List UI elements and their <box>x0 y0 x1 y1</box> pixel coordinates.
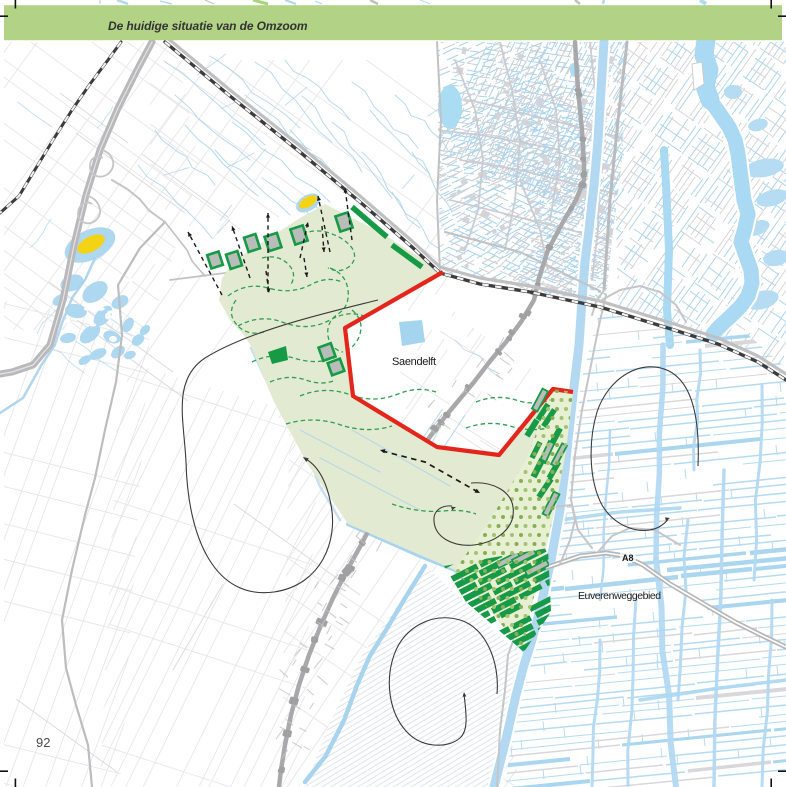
svg-text:92: 92 <box>36 735 50 750</box>
svg-text:Euverenweggebied: Euverenweggebied <box>578 590 661 602</box>
svg-text:Saendelft: Saendelft <box>392 356 436 368</box>
svg-text:A8: A8 <box>622 553 634 563</box>
svg-text:De huidige situatie van de Omz: De huidige situatie van de Omzoom <box>108 19 308 33</box>
